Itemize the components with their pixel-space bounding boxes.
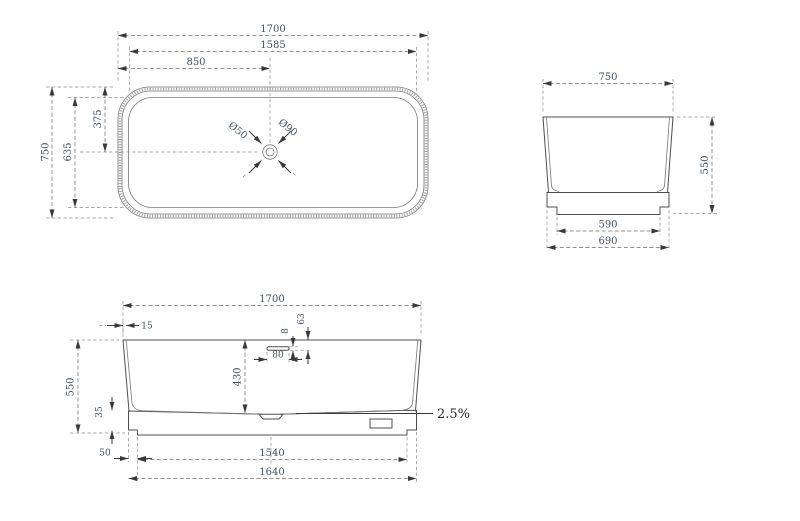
plan-outer-edge bbox=[118, 87, 428, 218]
drain-leader-sw bbox=[249, 161, 262, 174]
base-access-panel bbox=[370, 419, 392, 428]
plan-rim-outer-line bbox=[122, 91, 424, 214]
dim-plan-overall-width: 750 bbox=[41, 142, 52, 161]
floor-drain-recess bbox=[259, 414, 283, 419]
dim-plan-drain-offset-y: 375 bbox=[93, 109, 104, 128]
side-right-outer-wall bbox=[416, 340, 422, 411]
dim-side-overflow-slot-height: 8 bbox=[281, 328, 291, 334]
dim-plan-drain-offset-x: 850 bbox=[186, 57, 205, 68]
dim-drain-hole: Ø50 bbox=[226, 120, 249, 142]
drain-leader-nw bbox=[249, 131, 262, 144]
dim-plan-overall-length: 1700 bbox=[260, 24, 285, 35]
dim-end-overall-height: 550 bbox=[700, 155, 711, 174]
plan-view: Ø50 Ø90 1700 1585 850 750 635 375 bbox=[41, 24, 429, 218]
drain-leader-tail-se bbox=[293, 173, 297, 177]
dim-plan-rim-length: 1585 bbox=[260, 40, 285, 51]
dim-end-base-top-width: 690 bbox=[598, 236, 617, 247]
dim-side-overall-height: 550 bbox=[66, 377, 77, 396]
dim-side-overflow-depth: 63 bbox=[297, 313, 307, 325]
dim-side-base-step: 50 bbox=[99, 449, 111, 459]
side-right-inner-wall bbox=[403, 340, 418, 410]
drawing-sheet: Ø50 Ø90 1700 1585 850 750 635 375 bbox=[0, 0, 800, 521]
dim-side-overall-length: 1700 bbox=[259, 294, 284, 305]
drain-symbol: Ø50 Ø90 bbox=[226, 117, 299, 177]
plan-fluted-rim-texture bbox=[120, 89, 426, 216]
dim-end-overall-width: 750 bbox=[598, 72, 617, 83]
dim-plan-rim-width: 635 bbox=[63, 142, 74, 161]
technical-drawing-canvas: Ø50 Ø90 1700 1585 850 750 635 375 bbox=[0, 0, 800, 521]
side-view: 1700 15 8 63 80 430 550 35 bbox=[66, 294, 471, 483]
end-left-inner-wall bbox=[547, 117, 560, 192]
dim-side-base-top-length: 1640 bbox=[259, 467, 284, 478]
drain-leader-se bbox=[279, 161, 292, 174]
dim-side-inner-depth: 430 bbox=[233, 367, 244, 386]
drain-leader-tail-sw bbox=[243, 173, 247, 177]
plan-rim-inner-line bbox=[129, 98, 418, 208]
dim-side-base-height: 35 bbox=[95, 406, 105, 418]
end-right-inner-wall bbox=[657, 117, 670, 192]
dim-side-overflow-slot-width: 80 bbox=[272, 351, 284, 361]
dim-drain-flange: Ø90 bbox=[276, 117, 299, 139]
side-left-outer-wall bbox=[123, 340, 129, 411]
dim-end-base-bottom-width: 590 bbox=[598, 220, 617, 231]
dim-side-base-bottom-length: 1540 bbox=[259, 448, 284, 459]
floor-line-left bbox=[142, 411, 262, 414]
dim-side-wall-thickness: 15 bbox=[141, 322, 153, 332]
end-view: 750 550 590 690 bbox=[543, 72, 717, 252]
floor-slope-label: 2.5% bbox=[437, 407, 470, 422]
end-fluted-base bbox=[547, 193, 669, 215]
